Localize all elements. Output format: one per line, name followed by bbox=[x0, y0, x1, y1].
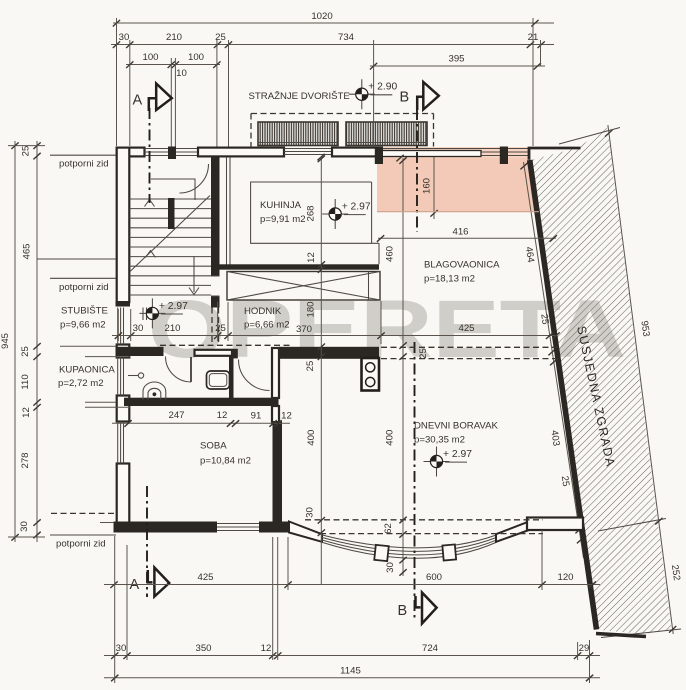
svg-text:p=6,66 m2: p=6,66 m2 bbox=[244, 320, 290, 331]
svg-text:p=18,13 m2: p=18,13 m2 bbox=[424, 274, 475, 285]
svg-text:+ 2.97: + 2.97 bbox=[342, 202, 371, 213]
svg-text:p=2,72 m2: p=2,72 m2 bbox=[58, 378, 104, 389]
svg-text:DNEVNI BORAVAK: DNEVNI BORAVAK bbox=[414, 421, 498, 432]
svg-text:120: 120 bbox=[557, 572, 573, 583]
svg-text:400: 400 bbox=[385, 430, 396, 446]
svg-text:268: 268 bbox=[306, 205, 317, 221]
svg-text:464: 464 bbox=[523, 246, 536, 264]
svg-text:B: B bbox=[398, 603, 408, 619]
svg-text:278: 278 bbox=[20, 452, 31, 468]
svg-text:25: 25 bbox=[20, 346, 31, 357]
svg-text:25: 25 bbox=[559, 475, 571, 487]
svg-text:460: 460 bbox=[385, 246, 396, 262]
svg-text:KUPAONICA: KUPAONICA bbox=[59, 365, 115, 376]
svg-text:12: 12 bbox=[306, 252, 317, 263]
svg-text:25: 25 bbox=[418, 348, 429, 359]
svg-text:29: 29 bbox=[579, 643, 590, 654]
svg-text:STRAŽNJE DVORIŠTE: STRAŽNJE DVORIŠTE bbox=[249, 91, 350, 102]
svg-text:30: 30 bbox=[116, 643, 127, 654]
svg-text:953: 953 bbox=[638, 320, 651, 337]
svg-text:400: 400 bbox=[306, 430, 317, 446]
svg-text:A: A bbox=[133, 93, 143, 109]
svg-text:403: 403 bbox=[548, 429, 561, 446]
svg-text:425: 425 bbox=[458, 323, 474, 334]
svg-text:210: 210 bbox=[164, 323, 180, 334]
svg-text:395: 395 bbox=[448, 54, 464, 65]
svg-text:+ 2.90: + 2.90 bbox=[368, 82, 397, 93]
svg-text:potporni zid: potporni zid bbox=[59, 159, 109, 170]
svg-text:25: 25 bbox=[538, 313, 550, 325]
svg-text:416: 416 bbox=[452, 227, 468, 238]
svg-text:p=9,66 m2: p=9,66 m2 bbox=[60, 320, 106, 331]
svg-text:945: 945 bbox=[0, 333, 11, 349]
svg-text:p=9,91 m2: p=9,91 m2 bbox=[260, 214, 306, 225]
svg-text:potporni zid: potporni zid bbox=[56, 539, 106, 550]
svg-text:BLAGOVAONICA: BLAGOVAONICA bbox=[424, 260, 500, 271]
svg-text:110: 110 bbox=[20, 374, 31, 389]
svg-text:25: 25 bbox=[21, 146, 32, 157]
svg-text:30: 30 bbox=[133, 323, 144, 334]
svg-text:62: 62 bbox=[383, 523, 394, 534]
svg-text:210: 210 bbox=[166, 32, 182, 43]
svg-text:180: 180 bbox=[306, 301, 317, 317]
svg-text:+ 2.97: + 2.97 bbox=[443, 449, 472, 460]
svg-text:252: 252 bbox=[669, 564, 682, 581]
svg-text:STUBIŠTE: STUBIŠTE bbox=[61, 306, 108, 317]
svg-text:425: 425 bbox=[197, 572, 213, 583]
svg-text:1020: 1020 bbox=[311, 11, 332, 22]
svg-text:30: 30 bbox=[119, 32, 130, 43]
svg-text:25: 25 bbox=[305, 361, 316, 372]
svg-text:25: 25 bbox=[215, 323, 226, 334]
svg-text:247: 247 bbox=[168, 410, 184, 421]
svg-text:100: 100 bbox=[188, 52, 204, 63]
svg-text:350: 350 bbox=[195, 643, 211, 654]
svg-text:30: 30 bbox=[385, 562, 396, 573]
svg-text:+ 2.97: + 2.97 bbox=[159, 301, 188, 312]
svg-text:p=30,35 m2: p=30,35 m2 bbox=[414, 435, 465, 446]
svg-text:B: B bbox=[400, 90, 410, 106]
svg-text:91: 91 bbox=[251, 411, 262, 422]
svg-text:12: 12 bbox=[261, 643, 272, 654]
svg-text:724: 724 bbox=[422, 643, 439, 654]
svg-text:100: 100 bbox=[142, 52, 158, 63]
svg-text:SOBA: SOBA bbox=[200, 441, 227, 452]
svg-text:160: 160 bbox=[422, 178, 433, 194]
svg-text:p=10,84 m2: p=10,84 m2 bbox=[200, 456, 251, 467]
svg-text:KUHINJA: KUHINJA bbox=[260, 200, 302, 211]
svg-text:HODNIK: HODNIK bbox=[244, 306, 282, 317]
svg-text:30: 30 bbox=[19, 521, 30, 532]
svg-text:1145: 1145 bbox=[340, 666, 361, 677]
svg-text:12: 12 bbox=[217, 410, 228, 421]
svg-text:12: 12 bbox=[281, 411, 292, 422]
svg-text:potporni zid: potporni zid bbox=[59, 282, 109, 293]
svg-text:734: 734 bbox=[338, 32, 355, 43]
svg-text:30: 30 bbox=[305, 507, 316, 518]
svg-text:370: 370 bbox=[296, 324, 312, 335]
svg-text:10: 10 bbox=[176, 68, 187, 79]
svg-text:465: 465 bbox=[22, 243, 33, 259]
svg-text:12: 12 bbox=[21, 407, 32, 418]
svg-text:600: 600 bbox=[426, 572, 442, 583]
